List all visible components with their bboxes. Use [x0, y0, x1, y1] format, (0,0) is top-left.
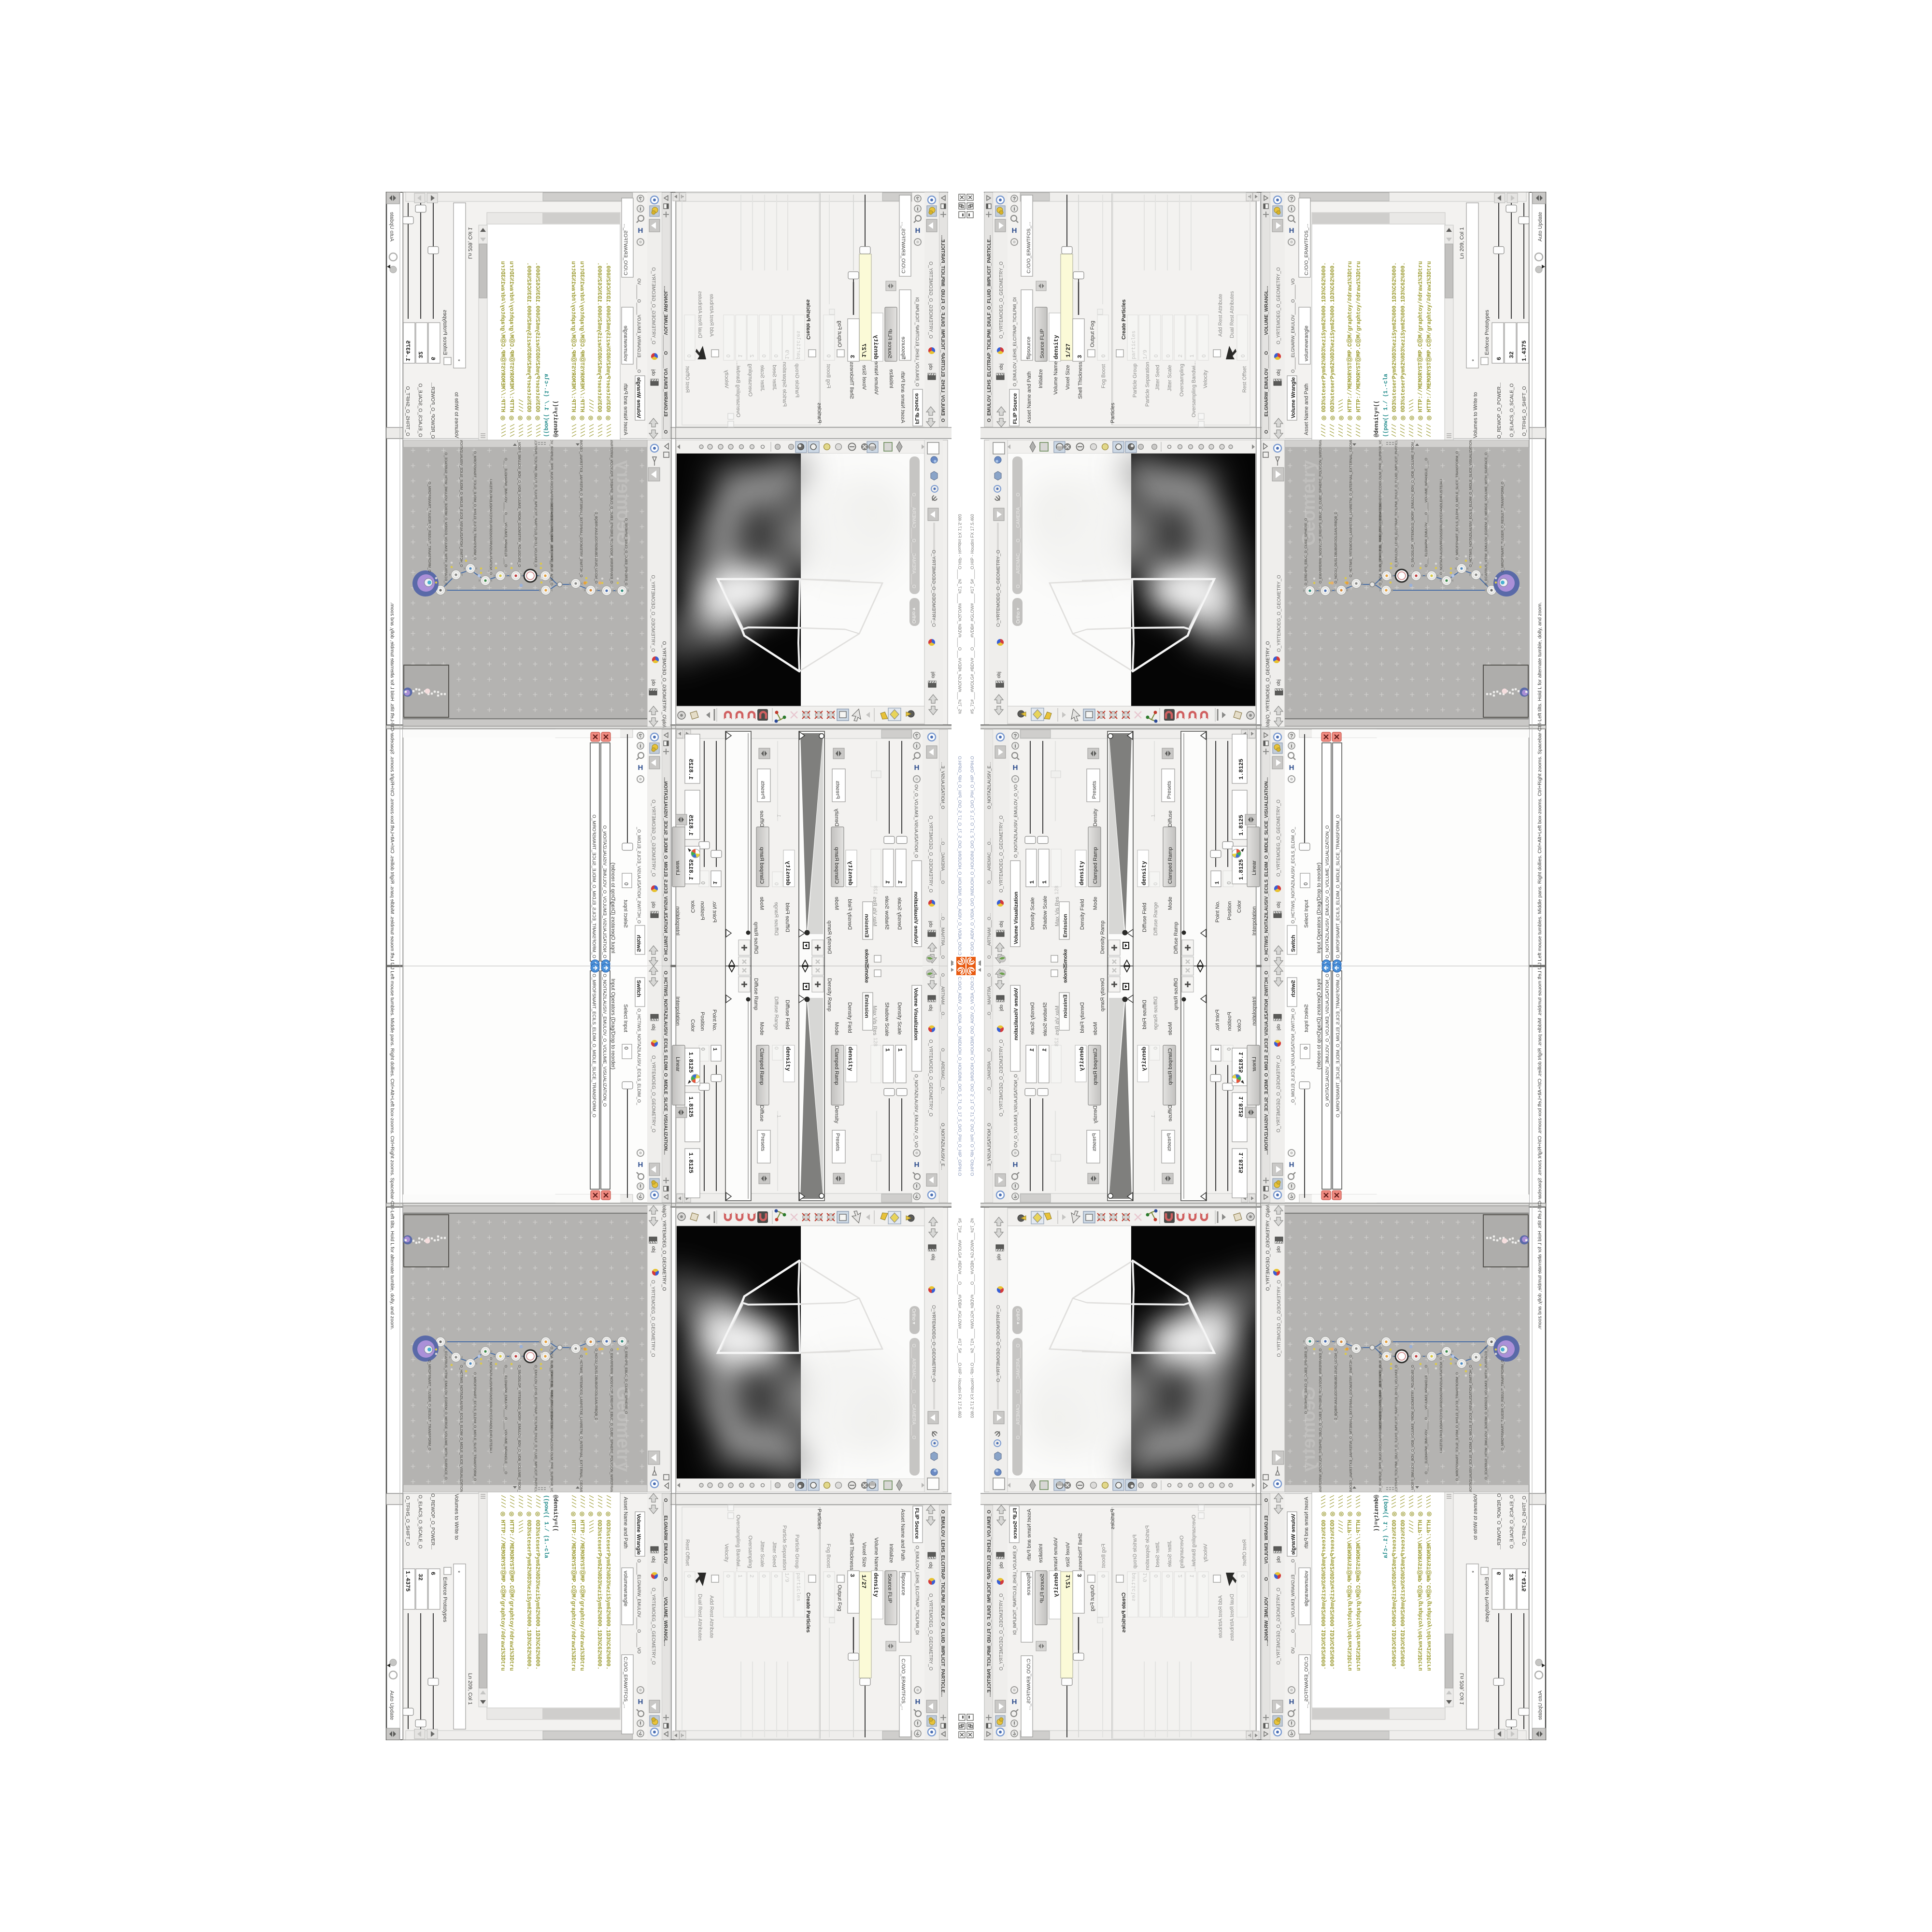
svg-text:O_ELACS_O_SCALE_O: O_ELACS_O_SCALE_O — [1509, 384, 1515, 437]
svg-text:1: 1 — [1151, 814, 1156, 817]
svg-text:O_MROFSNART_TLUSER_O_RESULT_TR: O_MROFSNART_TLUSER_O_RESULT_TRANSFORM_O — [1500, 482, 1505, 572]
svg-text:128: 128 — [1054, 886, 1060, 895]
svg-text:Add Rest Attribute: Add Rest Attribute — [1218, 294, 1223, 337]
svg-text:Color: Color — [1236, 900, 1242, 913]
svg-text:0: 0 — [1153, 882, 1159, 885]
svg-text:obj: obj — [1276, 369, 1281, 376]
svg-text:O_YRTEMOEG_O_GEOMETRY_O: O_YRTEMOEG_O_GEOMETRY_O — [1276, 799, 1281, 877]
svg-text:Ortho ▾: Ortho ▾ — [1016, 608, 1021, 624]
svg-text:?: ? — [1013, 196, 1016, 202]
svg-text:O_TFIHS_O_SHIFT_O: O_TFIHS_O_SHIFT_O — [1522, 386, 1527, 436]
svg-text:O____ELGNARW_EMULOV____O_____V: O____ELGNARW_EMULOV____O_____VOLUME_WRAN… — [1424, 458, 1428, 567]
svg-text:1/9: 1/9 — [1143, 350, 1149, 359]
svg-text:O_EMULOV_LEHS_ELCITRAP_TICILPM: O_EMULOV_LEHS_ELCITRAP_TICILPMI_DIULF_O_… — [987, 235, 992, 422]
svg-text:Oversampling Bandwi...: Oversampling Bandwi... — [1191, 361, 1197, 417]
svg-text://// ◎ HTTP://MEMORYSTⓄMP.CⓄM: //// ◎ HTTP://MEMORYSTⓄMP.CⓄM/graphtoy/#… — [1425, 261, 1433, 437]
svg-text:0: 0 — [1101, 355, 1107, 357]
svg-text:O_HCTIWS_NOITAZILAUSIV_ECILS_E: O_HCTIWS_NOITAZILAUSIV_ECILS_ELDIM_O_ — [1291, 826, 1295, 923]
svg-text:/obj/O_YRTEMOEG_O_GEOMETRY_O: /obj/O_YRTEMOEG_O_GEOMETRY_O — [1265, 641, 1271, 727]
svg-text:Enforce Prototypes: Enforce Prototypes — [1484, 310, 1490, 355]
svg-text:O____ARTNAM___O...: O____ARTNAM___O... — [987, 913, 992, 959]
svg-text:H: H — [1289, 227, 1294, 235]
svg-text:Volume Wrangle: Volume Wrangle — [1291, 377, 1296, 418]
svg-text:@density=((: @density=(( — [1374, 400, 1380, 437]
svg-text:H: H — [1012, 227, 1017, 235]
svg-text:O_REWOP_O_POWER...: O_REWOP_O_POWER... — [1497, 383, 1502, 439]
svg-text:density: density — [1079, 861, 1085, 885]
svg-text:Mode: Mode — [1093, 896, 1098, 910]
svg-text:#5_71#___#WOLG#_#BDV#___O____#: #5_71#___#WOLG#_#BDV#___O____#VDB#_#GLOW… — [970, 514, 975, 714]
svg-text:0: 0 — [1201, 355, 1207, 357]
svg-text:0: 0 — [1165, 355, 1171, 357]
svg-text:Position: Position — [1227, 901, 1233, 920]
svg-text:?: ? — [1290, 733, 1293, 739]
svg-text:O_MROFSNART_ECILS_ELDIM_O_MIDL: O_MROFSNART_ECILS_ELDIM_O_MIDLE_SLICE_TR… — [1455, 451, 1459, 560]
svg-text:Velocity: Velocity — [1203, 370, 1208, 388]
svg-text:32: 32 — [1508, 352, 1515, 358]
svg-text:O_YRTEMOEG_O_GEOMETRY_O: O_YRTEMOEG_O_GEOMETRY_O — [999, 261, 1004, 339]
svg-text:obj: obj — [999, 364, 1004, 370]
svg-text:Diffuse: Diffuse — [1167, 810, 1173, 827]
svg-text:i: i — [1014, 743, 1016, 749]
svg-text:Oversampling: Oversampling — [1179, 364, 1185, 397]
svg-text:volumewrangle: volumewrangle — [1304, 326, 1309, 361]
svg-text://// ◎ 0D3%steserPym62%0D3%ez: //// ◎ 0D3%steserPym62%0D3%eziSym62%000.… — [1330, 262, 1336, 437]
svg-text:obj: obj — [996, 672, 1002, 678]
svg-text:i: i — [1013, 206, 1015, 212]
svg-text:0: 0 — [1226, 881, 1232, 884]
svg-text:?: ? — [1290, 196, 1293, 202]
svg-text:O_NOITAZILAUSIV_EMULOV_O_VO: O_NOITAZILAUSIV_EMULOV_O_VO — [1013, 784, 1018, 858]
svg-text:Particle Separation: Particle Separation — [1145, 362, 1151, 407]
svg-text:Auto Update: Auto Update — [1537, 212, 1543, 241]
svg-text:Density Ramp: Density Ramp — [1100, 921, 1106, 954]
svg-text:1: 1 — [1041, 881, 1048, 884]
svg-text:C:/O/O_ERAWTFOS_...: C:/O/O_ERAWTFOS_... — [1026, 222, 1032, 273]
svg-text:obj: obj — [1276, 902, 1281, 908]
svg-text:O_YRTEMOEG_O_GEOMETRY_O: O_YRTEMOEG_O_GEOMETRY_O — [999, 815, 1004, 893]
svg-text://// ◎ HTTP://MEMORYSTⓄMP.CⓄM: //// ◎ HTTP://MEMORYSTⓄMP.CⓄM/graphtoy/#… — [1417, 261, 1424, 437]
svg-text:Presets: Presets — [1166, 781, 1172, 799]
svg-text:particles: particles — [1131, 331, 1137, 359]
svg-text:Fog Boost: Fog Boost — [1101, 364, 1107, 388]
svg-text:1: 1 — [1215, 881, 1221, 884]
svg-text:Switch: Switch — [1291, 935, 1296, 952]
svg-text:Density Scale: Density Scale — [1030, 897, 1036, 930]
svg-text:O_ECA_BUBL_RMR_PBL_RIFE_CEGR_E: O_ECA_BUBL_RMR_PBL_RIFE_CEGR_EBNACDIG — [1378, 502, 1382, 585]
svg-text:O_HCTIWS_NOITAZILAUSIV_ECILS_E: O_HCTIWS_NOITAZILAUSIV_ECILS_ELDIM_O_MID… — [1468, 419, 1473, 567]
svg-text://// ◎ 0D3%steserPym62%0D3%ez: //// ◎ 0D3%steserPym62%0D3%eziSym62%000.… — [1392, 262, 1398, 437]
svg-text:O_YRTEMOEG_O_GEOMETRY_O: O_YRTEMOEG_O_GEOMETRY_O — [996, 550, 1001, 627]
svg-text:O_____ELGNARW_EMULOV_____O____: O_____ELGNARW_EMULOV_____O______VO — [1291, 279, 1295, 373]
svg-text:0: 0 — [1153, 355, 1159, 357]
svg-text://// ◎ \\\\: //// ◎ \\\\ — [1338, 399, 1345, 437]
svg-text:1: 1 — [1029, 881, 1036, 884]
svg-text:Point No.: Point No. — [1215, 901, 1221, 923]
svg-text:O_NOITAZILAUSIVBEGNSSEBLIDY/CO: O_NOITAZILAUSIVBEGNSSEBLIDY/COANDLEHELIS… — [1439, 479, 1443, 575]
svg-text:Smoke: Smoke — [1063, 949, 1068, 966]
svg-text:O_EMARFERIW_NOGYLOP_EREHPS_EBU: O_EMARFERIW_NOGYLOP_EREHPS_EBUC_D_CUBE_S… — [1318, 432, 1322, 583]
svg-text:Particle Group: Particle Group — [1132, 364, 1138, 398]
svg-text:Jitter Scale: Jitter Scale — [1167, 365, 1173, 391]
svg-text:O_YRTEMOEG_O_GEOMETRY_O: O_YRTEMOEG_O_GEOMETRY_O — [1277, 575, 1282, 652]
svg-text:Initialize: Initialize — [1038, 369, 1044, 388]
svg-text:Ln 209, Col 1: Ln 209, Col 1 — [1459, 227, 1465, 259]
svg-text:6: 6 — [1496, 357, 1503, 360]
svg-text:O_ECAFRUS_HTIW_EMULOV_EGREM_O_: O_ECAFRUS_HTIW_EMULOV_EGREM_O_MERGE_VOLU… — [1484, 452, 1488, 585]
svg-text:i: i — [1291, 743, 1292, 749]
svg-text:C:/O/O_ERAWTFOS_...: C:/O/O_ERAWTFOS_... — [1304, 224, 1309, 275]
svg-text:O_MROFSNART_ECILS_ELDIM_O_MIDL: O_MROFSNART_ECILS_ELDIM_O_MIDLE_SLICE_TR… — [1335, 814, 1341, 958]
svg-text:Emission: Emission — [1063, 914, 1068, 938]
svg-text:Clamped Ramp: Clamped Ramp — [1093, 847, 1098, 884]
svg-text:Dual Rest Attributes: Dual Rest Attributes — [1229, 291, 1235, 338]
svg-text:1: 1 — [1189, 355, 1195, 357]
svg-text://// ◎ 0D3%steserPym62%0D3%ez: //// ◎ 0D3%steserPym62%0D3%eziSym62%000.… — [1400, 262, 1406, 437]
svg-text:*: * — [1471, 359, 1477, 361]
svg-text:Volume Name: Volume Name — [1053, 361, 1059, 395]
svg-text:flipsource: flipsource — [1026, 337, 1032, 359]
svg-text:?: ? — [1014, 733, 1017, 739]
svg-text:O_HCTIWS_NOITAZILAUSIV_ECILS_E: O_HCTIWS_NOITAZILAUSIV_ECILS_ELDIM_O_MID… — [1264, 777, 1269, 961]
svg-text:obj: obj — [1276, 680, 1281, 686]
svg-text:O_EREHPS_EBUC_D_CUBE_SPHERE_O: O_EREHPS_EBUC_D_CUBE_SPHERE_O — [1304, 518, 1308, 585]
svg-text:Diffuse Ramp: Diffuse Ramp — [1173, 922, 1179, 954]
svg-text:Create Particles: Create Particles — [1121, 299, 1127, 340]
svg-text:0: 0 — [1303, 882, 1309, 885]
svg-text:1.4375: 1.4375 — [1521, 341, 1528, 361]
svg-text:1.8125: 1.8125 — [1238, 759, 1245, 780]
svg-text:O_EMULOV_LEHS_ELCITRAP_TICILPM: O_EMULOV_LEHS_ELCITRAP_TICILPMI_DI — [1012, 297, 1017, 386]
svg-text:Clamped Ramp: Clamped Ramp — [1167, 847, 1173, 884]
svg-text:((pow(( 1./ (1.-cla: ((pow(( 1./ (1.-cla — [1383, 374, 1389, 437]
svg-text:Interpolation: Interpolation — [1251, 906, 1257, 936]
svg-text:Presets: Presets — [1092, 781, 1097, 799]
svg-text:Diffuse Field: Diffuse Field — [1142, 903, 1148, 932]
svg-text:Shell Thickness: Shell Thickness — [1078, 362, 1083, 399]
svg-text:J Left mouse tumbles. Middle p: J Left mouse tumbles. Middle pans. Right… — [1537, 602, 1543, 965]
svg-text:Density: Density — [1093, 809, 1098, 826]
svg-text:O_NOITAZILAUSIV_EMULOV_O_VOLUM: O_NOITAZILAUSIV_EMULOV_O_VOLUME_VISUALIZ… — [1325, 825, 1330, 958]
svg-text:1.8125: 1.8125 — [1238, 815, 1245, 836]
svg-text:Diffuse Range: Diffuse Range — [1153, 902, 1159, 936]
svg-text:i: i — [1291, 206, 1292, 212]
svg-text:Volume Visualization: Volume Visualization — [1013, 892, 1019, 944]
svg-text:Output Fog: Output Fog — [1090, 321, 1095, 347]
svg-text:Select Input: Select Input — [1304, 900, 1309, 928]
svg-text:Asset Name and Path: Asset Name and Path — [1026, 371, 1032, 423]
svg-text:1.8125: 1.8125 — [1238, 859, 1245, 880]
svg-text:O_NOGU_DUSLDBUBGRDOLGANJRBQB_D: O_NOGU_DUSLDBUBGRDOLGANJRBQB_D — [1334, 511, 1338, 583]
svg-text:FLIP Source: FLIP Source — [1012, 393, 1018, 424]
svg-text:O____AREMAC____O____CAMERA____: O____AREMAC____O____CAMERA____O — [1016, 493, 1021, 588]
svg-text:H: H — [1289, 764, 1294, 772]
svg-text:Jitter Seed: Jitter Seed — [1155, 365, 1161, 390]
svg-text:Density Field: Density Field — [1080, 899, 1085, 930]
svg-text:Linear: Linear — [1251, 860, 1257, 875]
svg-text:Particles: Particles — [1110, 402, 1116, 423]
svg-text:Geometry: Geometry — [1299, 460, 1319, 546]
svg-text://// ◎ 0D3%steserPym62%0D3%ez: //// ◎ 0D3%steserPym62%0D3%eziSym62%000.… — [1321, 262, 1327, 437]
svg-text:O_YRTEMOEG_O_GEOMETRY_O: O_YRTEMOEG_O_GEOMETRY_O — [1276, 267, 1281, 344]
svg-text:H: H — [1013, 764, 1018, 772]
svg-text:0: 0 — [1240, 355, 1246, 357]
svg-text:obj: obj — [999, 921, 1004, 927]
svg-text:2: 2 — [1178, 355, 1183, 357]
svg-text:Asset Name and Path: Asset Name and Path — [1304, 384, 1309, 435]
svg-text:Mode: Mode — [1167, 896, 1173, 910]
svg-text:C:/O/O_AIDIV_O_VIDIA_O/O_INIDU: C:/O/O_AIDIV_O_VIDIA_O/O_INIDUOH_O_HOUDI… — [970, 756, 975, 955]
svg-text:Volumes to Write to: Volumes to Write to — [1473, 392, 1478, 438]
svg-text:Voxel Size: Voxel Size — [1065, 365, 1071, 390]
svg-text://// ◎ HTTP://MEMORYSTⓄMP.CⓄM: //// ◎ HTTP://MEMORYSTⓄMP.CⓄM/graphtoy/#… — [1355, 261, 1362, 437]
svg-text:O_NOITAZILAUSIV_E...: O_NOITAZILAUSIV_E... — [987, 762, 992, 809]
svg-text:Source FLIP: Source FLIP — [1039, 329, 1045, 358]
svg-text:O____AREMAC___O...: O____AREMAC___O... — [987, 838, 992, 884]
svg-text:3: 3 — [1077, 355, 1083, 358]
svg-text:Shadow Scale: Shadow Scale — [1042, 896, 1048, 930]
svg-text:Rest Offset: Rest Offset — [1242, 366, 1248, 393]
svg-text:density: density — [1053, 335, 1060, 359]
svg-text://// ◎ HTTP://MEMORYSTⓄMP.CⓄM: //// ◎ HTTP://MEMORYSTⓄMP.CⓄM/graphtoy/#… — [1346, 261, 1353, 437]
svg-text:Input Operators (Drag/Drop to: Input Operators (Drag/Drop to reorder) — [1316, 863, 1322, 953]
svg-text:1/27: 1/27 — [1065, 343, 1072, 357]
svg-text:O_____ELGNARW_EMULOV_____O____: O_____ELGNARW_EMULOV_____O______VOLUME_W… — [1264, 286, 1269, 434]
svg-text://// ◎ \\\\: //// ◎ \\\\ — [1409, 399, 1415, 437]
svg-text:density: density — [1141, 861, 1148, 885]
